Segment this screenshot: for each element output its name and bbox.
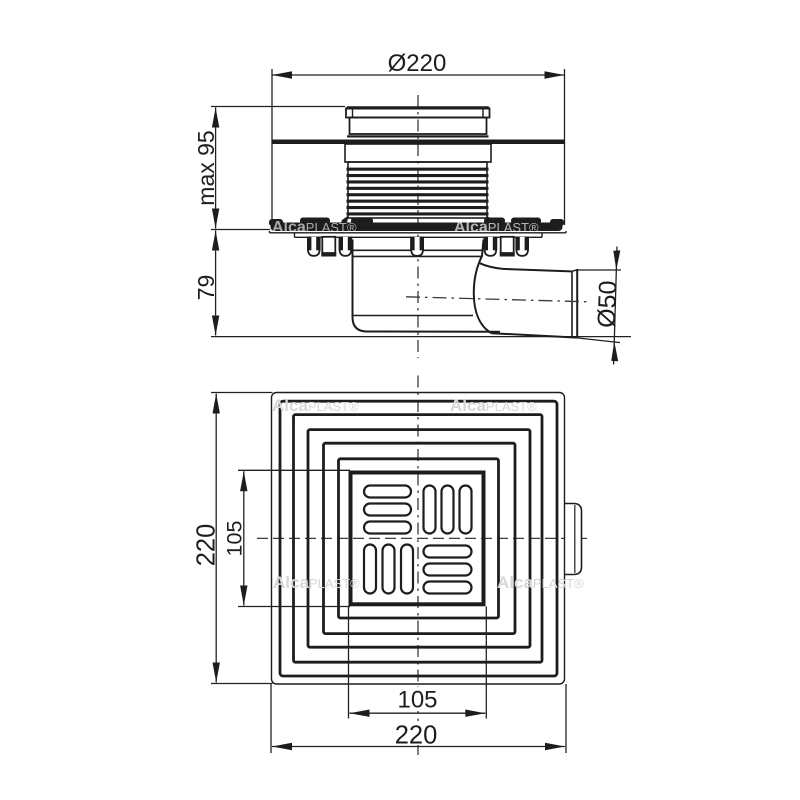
svg-text:105: 105 <box>223 521 247 557</box>
svg-text:AlcaPLAST®: AlcaPLAST® <box>273 573 360 592</box>
svg-text:AlcaPLAST®: AlcaPLAST® <box>272 396 359 415</box>
svg-text:220: 220 <box>193 524 221 567</box>
svg-text:220: 220 <box>395 722 438 750</box>
svg-text:AlcaPLAST®: AlcaPLAST® <box>497 573 584 592</box>
svg-text:Ø220: Ø220 <box>388 50 447 77</box>
svg-text:105: 105 <box>397 687 437 714</box>
svg-text:AlcaPLAST®: AlcaPLAST® <box>450 396 537 415</box>
svg-text:Ø50: Ø50 <box>593 280 623 328</box>
svg-text:79: 79 <box>193 275 219 301</box>
svg-text:max 95: max 95 <box>193 130 219 205</box>
